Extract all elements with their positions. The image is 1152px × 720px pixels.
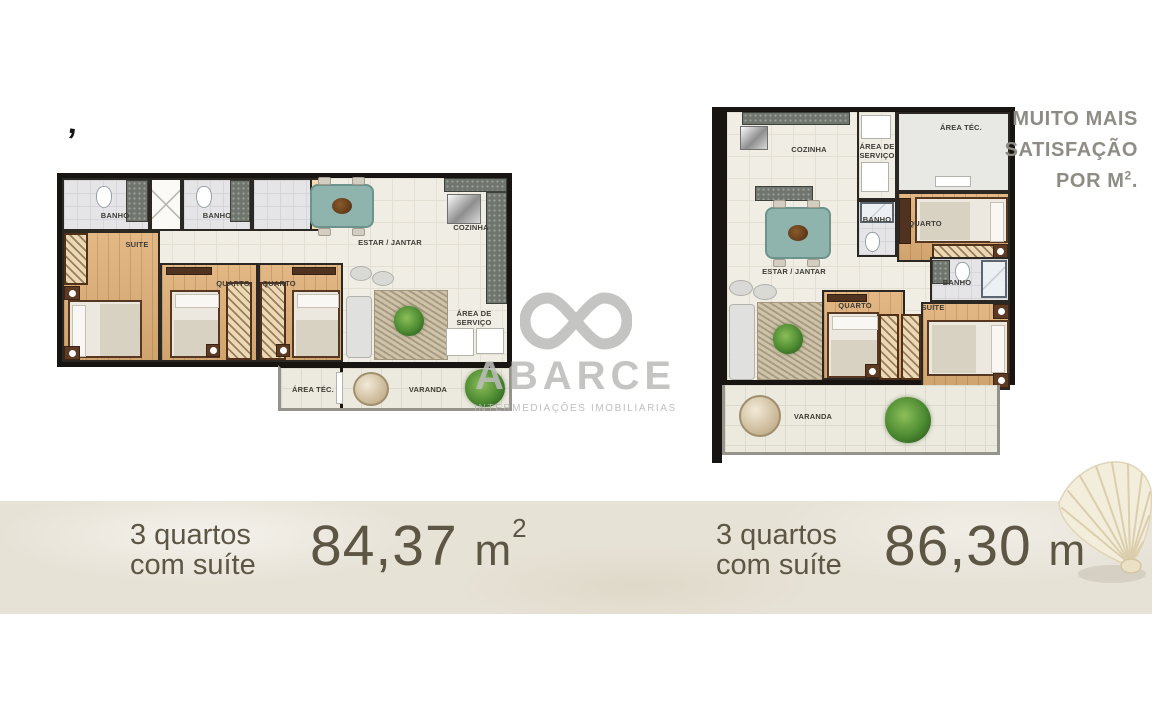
note-line-3: POR M2. bbox=[968, 166, 1138, 197]
armchair-icon bbox=[353, 372, 389, 406]
equipment-icon bbox=[935, 176, 971, 187]
counter-icon bbox=[755, 186, 813, 201]
chair-icon bbox=[773, 259, 786, 267]
nightstand-icon bbox=[865, 364, 880, 378]
plant-icon bbox=[394, 306, 424, 336]
room-label: ESTAR / JANTAR bbox=[749, 267, 839, 276]
counter-icon bbox=[486, 192, 507, 304]
pouf-icon bbox=[729, 280, 753, 296]
counter-icon bbox=[742, 112, 850, 125]
toilet-icon bbox=[96, 186, 112, 208]
plan-b-summary-label: 3 quartos com suíte bbox=[716, 520, 842, 580]
seashell-icon bbox=[1050, 458, 1152, 590]
wardrobe-icon bbox=[64, 233, 88, 285]
note-line-1: MUITO MAIS bbox=[968, 104, 1138, 135]
dining-table-icon bbox=[765, 207, 831, 259]
bed-icon bbox=[292, 290, 340, 358]
sofa-icon bbox=[729, 304, 755, 380]
plan-a-body: BANHO BANHO SUITE QUARTO QUARTO ESTAR / … bbox=[57, 173, 512, 367]
room-label: VARANDA bbox=[393, 385, 463, 394]
room-label: SUITE bbox=[117, 240, 157, 249]
hall bbox=[252, 178, 310, 231]
room-label: ÁREA TÉC. bbox=[287, 385, 339, 394]
nightstand-icon bbox=[993, 304, 1009, 319]
toilet-icon bbox=[196, 186, 212, 208]
counter-icon bbox=[444, 178, 507, 192]
area-summary-band: 3 quartos com suíte 84,37 m2 3 quartos c… bbox=[0, 501, 1152, 614]
toilet-icon bbox=[865, 232, 880, 252]
chair-icon bbox=[807, 259, 820, 267]
flyer-canvas: ’ bbox=[0, 0, 1152, 720]
wardrobe-icon bbox=[226, 282, 252, 360]
plan-b-varanda: VARANDA bbox=[722, 385, 1000, 455]
chair-icon bbox=[318, 228, 331, 236]
nightstand-icon bbox=[64, 346, 80, 360]
washer-icon bbox=[861, 115, 891, 139]
armchair-icon bbox=[739, 395, 781, 437]
fridge-icon bbox=[447, 194, 481, 224]
closet bbox=[150, 178, 182, 231]
chair-icon bbox=[773, 200, 786, 208]
plant-icon bbox=[885, 397, 931, 443]
laundry-sink-icon bbox=[861, 162, 889, 192]
pouf-icon bbox=[372, 271, 394, 286]
floorplan-a: BANHO BANHO SUITE QUARTO QUARTO ESTAR / … bbox=[57, 173, 512, 413]
chair-icon bbox=[352, 177, 365, 185]
room-label: SUÍTE bbox=[911, 303, 955, 312]
infinity-logo-icon bbox=[520, 290, 632, 352]
room-label: QUARTO bbox=[255, 279, 303, 288]
note-superscript: 2 bbox=[1125, 168, 1132, 182]
room-label: BANHO bbox=[194, 211, 240, 220]
watermark-tagline: INTERMEDIAÇÕES IMOBILIARIAS bbox=[468, 403, 683, 414]
watermark-brand: ABARCE bbox=[468, 354, 683, 399]
note-line-2: SATISFAÇÃO bbox=[968, 135, 1138, 166]
chair-icon bbox=[807, 200, 820, 208]
nightstand-icon bbox=[64, 286, 80, 300]
wardrobe-icon bbox=[879, 314, 899, 380]
pouf-icon bbox=[350, 266, 372, 281]
room-label: COZINHA bbox=[442, 223, 500, 232]
room-label: QUARTO bbox=[209, 279, 257, 288]
tv-shelf-icon bbox=[166, 267, 212, 275]
bed-icon bbox=[927, 320, 1009, 376]
room-label: BANHO bbox=[92, 211, 138, 220]
chair-icon bbox=[318, 177, 331, 185]
chair-icon bbox=[352, 228, 365, 236]
tv-shelf-icon bbox=[292, 267, 336, 275]
watermark: ABARCE INTERMEDIAÇÕES IMOBILIARIAS bbox=[468, 290, 683, 414]
room-label: QUARTO bbox=[827, 301, 883, 310]
nightstand-icon bbox=[206, 344, 220, 357]
room-label: BANHO bbox=[859, 215, 895, 224]
fridge-icon bbox=[740, 126, 768, 150]
wardrobe-icon bbox=[901, 314, 921, 380]
decor-apostrophe: ’ bbox=[63, 122, 78, 162]
room-label: ESTAR / JANTAR bbox=[355, 238, 425, 247]
room-label: BANHO bbox=[933, 278, 981, 287]
room-label: ÁREA DE SERVIÇO bbox=[855, 142, 899, 160]
nightstand-icon bbox=[276, 344, 290, 357]
plan-b-left-wall bbox=[712, 107, 722, 463]
plant-icon bbox=[773, 324, 803, 354]
plan-a-summary-label: 3 quartos com suíte bbox=[130, 520, 256, 580]
tagline-note: MUITO MAIS SATISFAÇÃO POR M2. bbox=[968, 104, 1138, 197]
dining-table-icon bbox=[310, 184, 374, 228]
pouf-icon bbox=[753, 284, 777, 300]
sofa-icon bbox=[346, 296, 372, 358]
room-label: QUARTO bbox=[903, 219, 947, 228]
plan-a-area-value: 84,37 m2 bbox=[310, 513, 528, 579]
room-label: COZINHA bbox=[779, 145, 839, 154]
room-label: VARANDA bbox=[781, 412, 845, 421]
shower-icon bbox=[981, 260, 1007, 298]
